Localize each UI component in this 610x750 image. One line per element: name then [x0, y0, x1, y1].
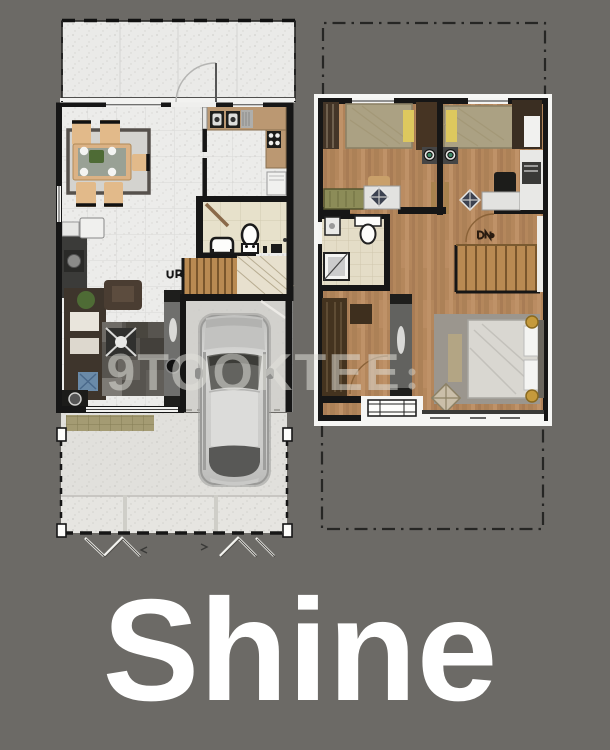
svg-text:9TOOKTEE: 9TOOKTEE — [106, 344, 401, 402]
svg-text:Shine: Shine — [103, 569, 498, 731]
